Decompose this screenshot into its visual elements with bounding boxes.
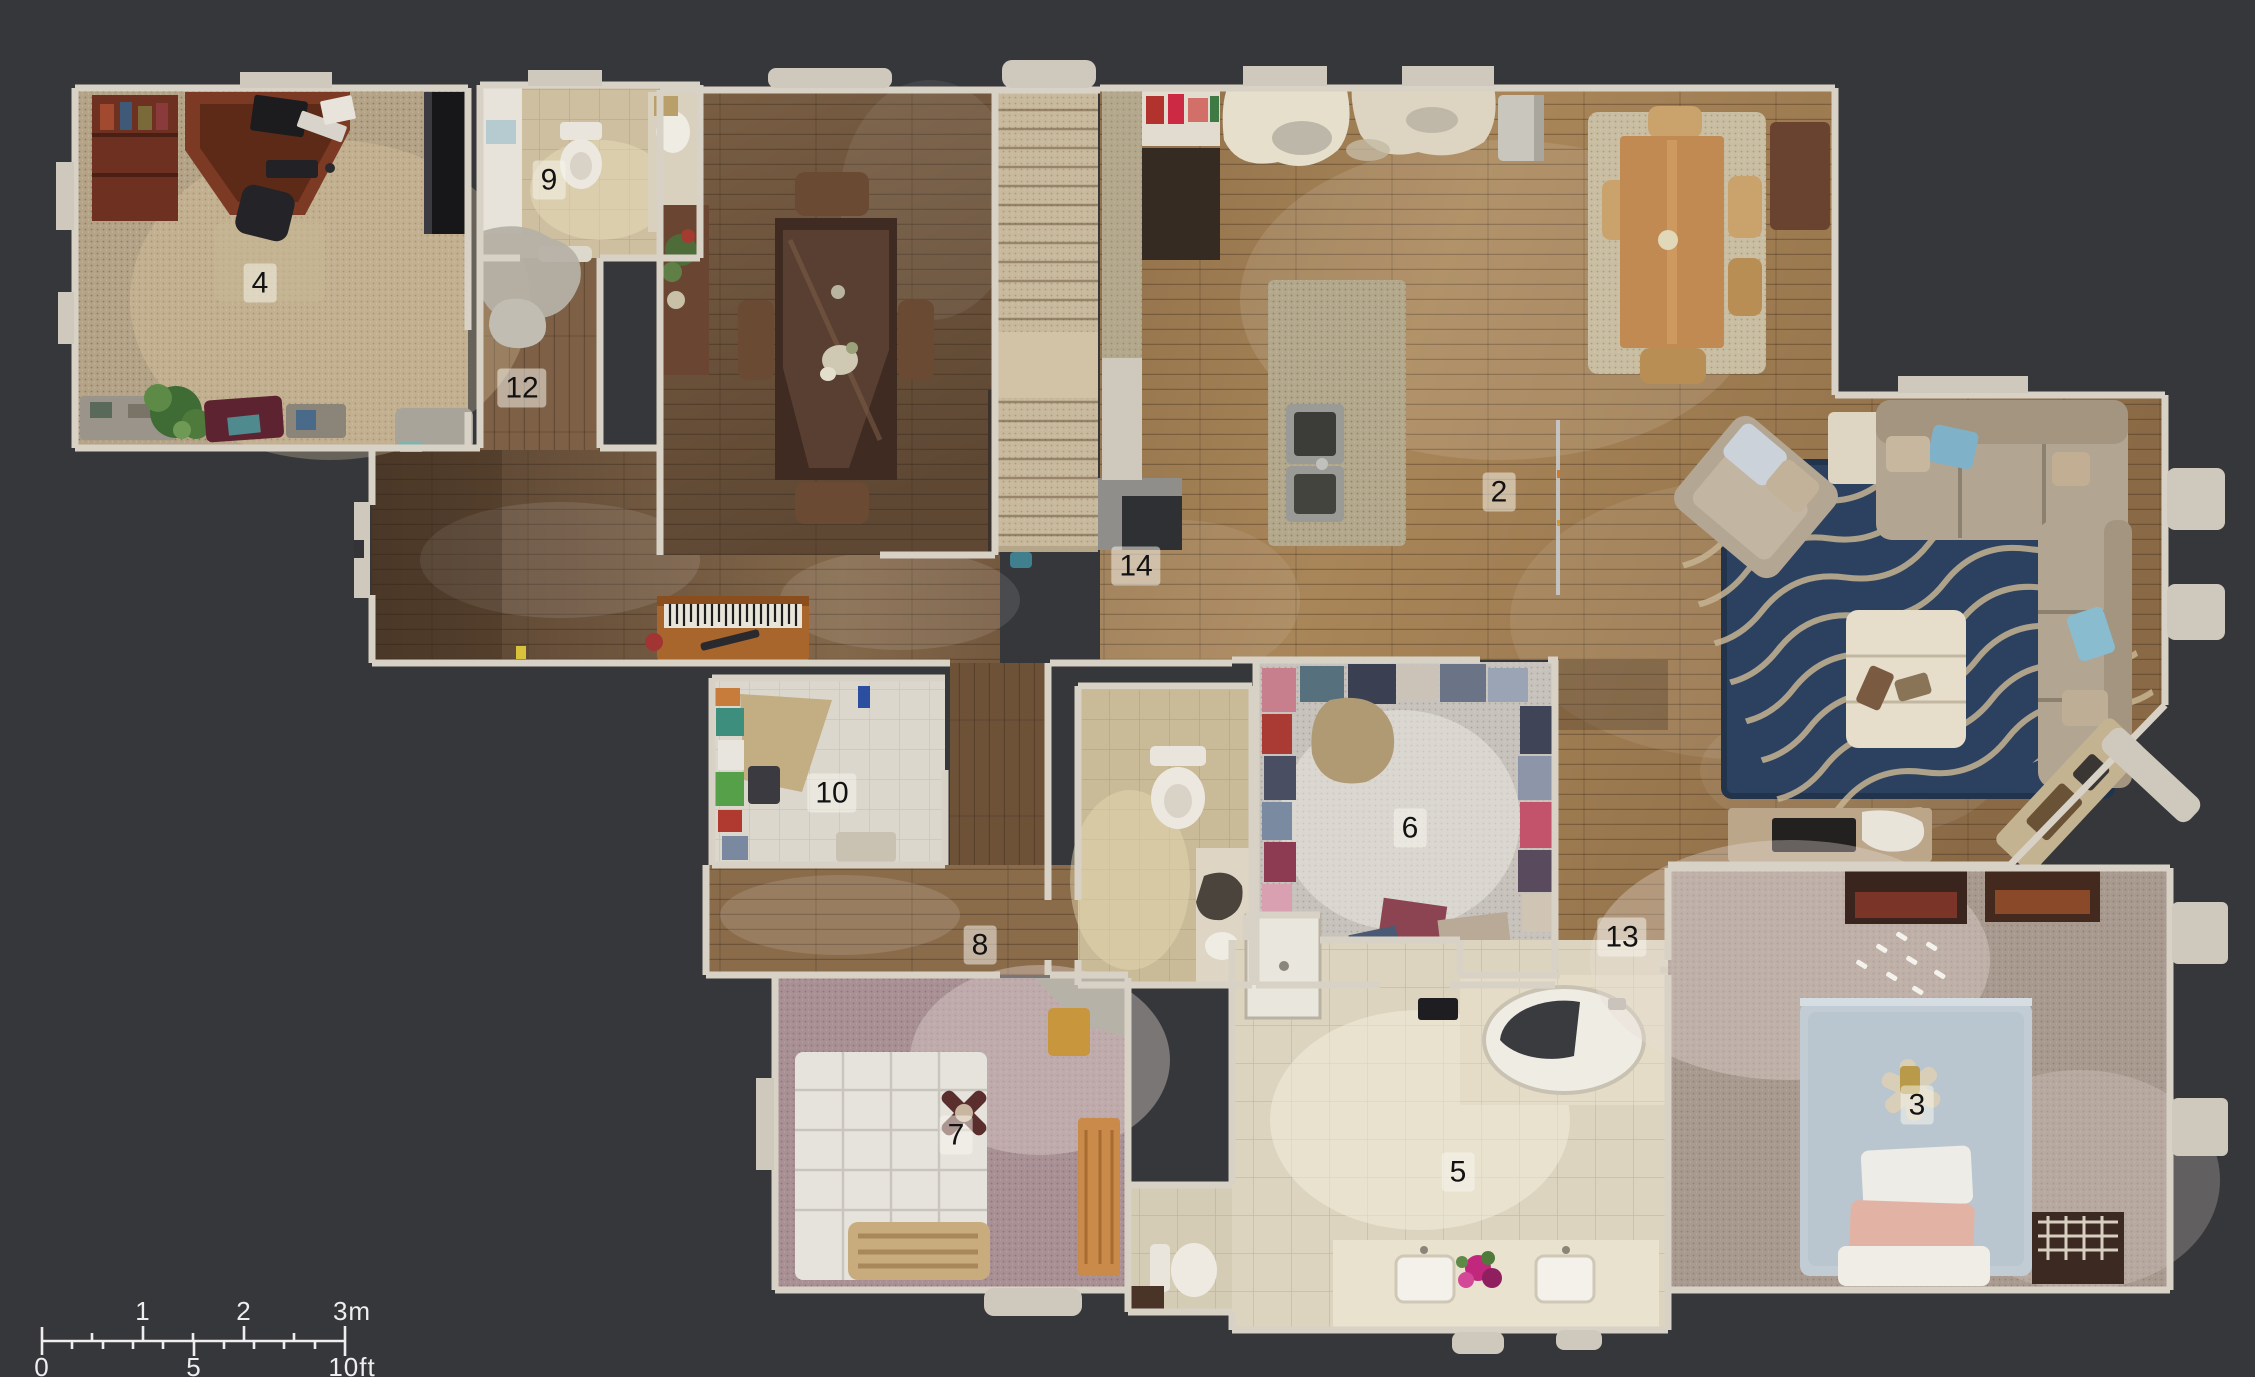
front-door-glass: [354, 540, 364, 558]
scale-feet-5: 5: [186, 1352, 201, 1377]
room-label-13[interactable]: 13: [1597, 918, 1646, 957]
room-label-4[interactable]: 4: [244, 264, 277, 303]
scale-meter-3: 3m: [333, 1296, 371, 1326]
bedroom-3: [1590, 840, 2220, 1290]
room-4-office: [75, 88, 530, 460]
bedroom-7: [775, 965, 1170, 1290]
room-label-12[interactable]: 12: [497, 369, 546, 408]
room-label-10[interactable]: 10: [807, 774, 856, 813]
floorplan-canvas[interactable]: 1 2 3m 0 5 10ft: [0, 0, 2255, 1377]
scale-feet-0: 0: [34, 1352, 49, 1377]
laundry-room-10: [712, 678, 945, 866]
room-label-3[interactable]: 3: [1901, 1086, 1934, 1125]
room-label-6[interactable]: 6: [1394, 809, 1427, 848]
room-label-14[interactable]: 14: [1111, 547, 1160, 586]
scale-meter-2: 2: [236, 1296, 251, 1326]
room-label-7[interactable]: 7: [940, 1116, 973, 1155]
room-label-9[interactable]: 9: [533, 161, 566, 200]
room-label-8[interactable]: 8: [964, 926, 997, 965]
floorplan-stage: 1 2 3m 0 5 10ft 2345678910121314: [0, 0, 2255, 1377]
room-label-5[interactable]: 5: [1442, 1153, 1475, 1192]
bathroom-small: [1070, 686, 1252, 985]
scale-meter-1: 1: [135, 1296, 150, 1326]
room-label-2[interactable]: 2: [1483, 473, 1516, 512]
scale-feet-10: 10ft: [328, 1352, 375, 1377]
